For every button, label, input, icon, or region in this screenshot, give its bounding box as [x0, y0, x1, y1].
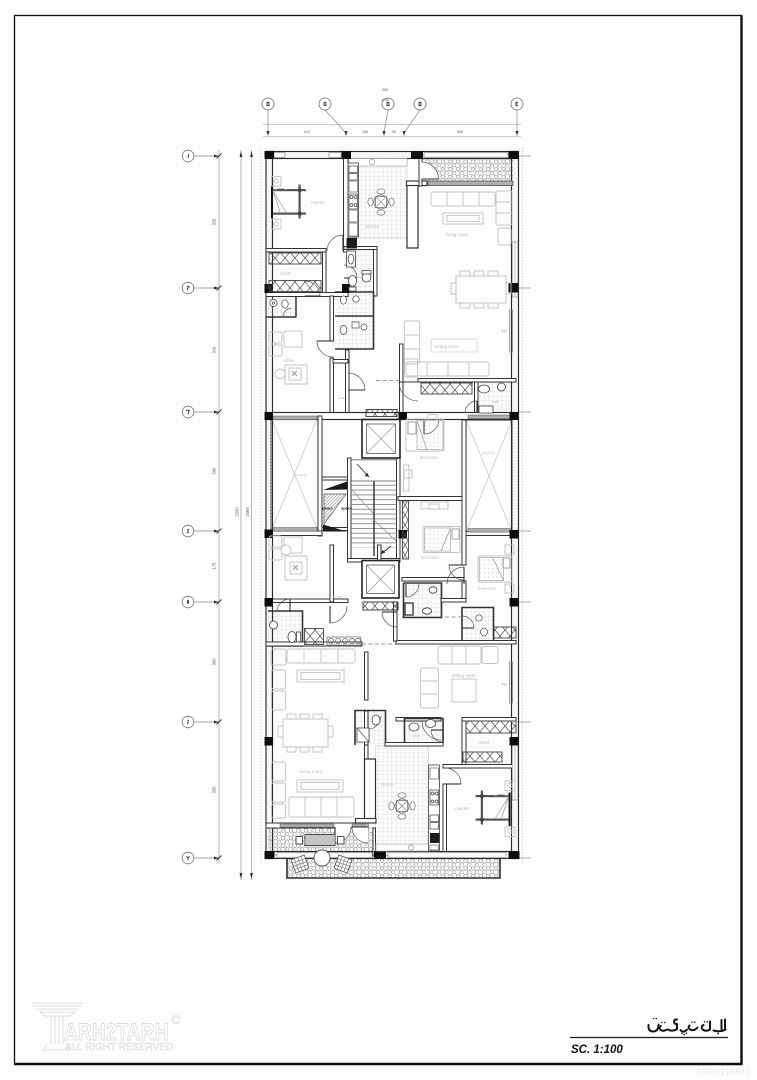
svg-text:295: 295	[212, 467, 217, 475]
svg-text:bed room: bed room	[421, 555, 439, 560]
svg-text:335: 335	[212, 786, 217, 794]
svg-text:kitchen: kitchen	[366, 224, 380, 229]
svg-text:PATIO: PATIO	[294, 473, 308, 478]
svg-text:master: master	[311, 200, 326, 205]
svg-text:95: 95	[392, 130, 396, 134]
svg-text:ALL RIGHT RESERVED: ALL RIGHT RESERVED	[65, 1042, 173, 1053]
svg-text:SC. 1:100: SC. 1:100	[571, 1044, 623, 1056]
svg-text:space: space	[341, 506, 353, 511]
svg-text:325: 325	[212, 218, 217, 226]
svg-text:bed room: bed room	[420, 455, 438, 460]
svg-text:175: 175	[212, 562, 217, 570]
svg-text:965: 965	[382, 88, 388, 92]
svg-text:300: 300	[212, 658, 217, 666]
svg-text:180: 180	[362, 130, 368, 134]
svg-text:bed room: bed room	[478, 586, 496, 591]
svg-text:closet: closet	[478, 740, 490, 745]
svg-text:enter: enter	[333, 594, 343, 599]
svg-text:TARH2TARH: TARH2TARH	[696, 1067, 749, 1077]
svg-text:2465: 2465	[245, 507, 250, 517]
svg-text:TV: TV	[501, 329, 508, 334]
svg-text:enter: enter	[338, 395, 348, 400]
svg-text:PATIO: PATIO	[482, 451, 496, 456]
svg-text:office: office	[284, 358, 295, 363]
svg-text:TV: TV	[501, 682, 508, 687]
svg-text:310: 310	[212, 346, 217, 354]
svg-text:1245: 1245	[381, 98, 389, 102]
svg-text:closet: closet	[280, 271, 292, 276]
svg-text:sitting room: sitting room	[452, 673, 476, 678]
svg-text:410: 410	[304, 130, 310, 134]
svg-text:living room: living room	[300, 769, 322, 774]
svg-text:bath: bath	[413, 734, 420, 738]
svg-text:2340: 2340	[235, 507, 240, 517]
svg-text:master: master	[455, 806, 470, 811]
svg-text:sitting room: sitting room	[435, 344, 459, 349]
svg-text:kitchen: kitchen	[381, 782, 395, 787]
svg-text:living room: living room	[446, 232, 468, 237]
svg-text:bath: bath	[492, 400, 499, 404]
svg-text:panel: panel	[322, 506, 332, 511]
svg-text:560: 560	[457, 130, 463, 134]
